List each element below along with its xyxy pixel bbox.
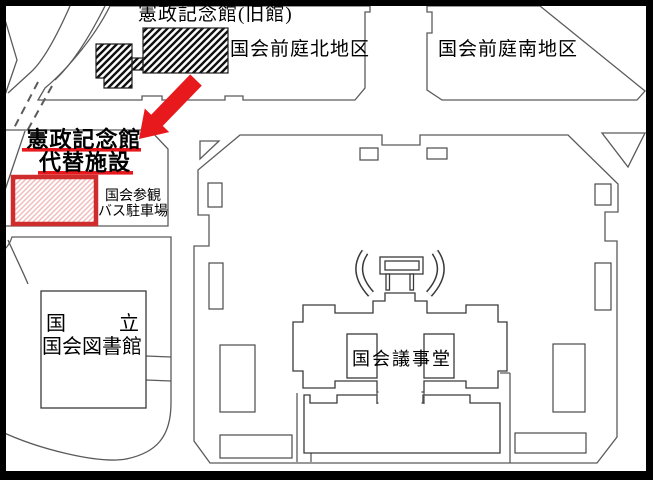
diet-block-annex-west: [220, 345, 255, 412]
old-hall-main-hatched: [143, 28, 228, 73]
label-library-ritsu: 立: [119, 312, 139, 335]
label-library-kuni: 国: [46, 313, 66, 335]
label-bus-parking-1: 国会参観: [105, 187, 161, 204]
label-north-garden: 国会前庭北地区: [230, 38, 370, 60]
frame-right: [646, 0, 653, 480]
diet-block-gate-west: [220, 435, 292, 458]
front-gate-post-left: [386, 274, 390, 290]
label-replacement-2: 代替施設: [38, 150, 131, 175]
bus-stop-rect-west: [360, 148, 378, 160]
label-diet-building: 国会議事堂: [352, 349, 452, 369]
diet-block-rect-w1: [209, 263, 223, 309]
replacement-site-rect: [13, 177, 96, 224]
diet-block-rect-e1: [595, 263, 611, 310]
diet-main-outline: [293, 293, 507, 392]
diet-block-rect-nw: [208, 183, 222, 207]
diet-center-connector-patch: [379, 390, 422, 405]
bus-stop-rect-east: [427, 148, 447, 159]
label-bus-parking-2: バス駐車場: [98, 203, 168, 220]
frame-left: [0, 0, 6, 480]
front-gate-post-right: [410, 274, 414, 290]
site-map-canvas: 憲政記念館(旧館) 国会前庭北地区 国会前庭南地区 憲政記念館 代替施設 国会参…: [0, 0, 653, 480]
label-library-2: 国会図書館: [42, 335, 142, 358]
frame-bottom: [0, 471, 653, 480]
diet-block-gate-east: [515, 433, 586, 453]
site-map-svg: 憲政記念館(旧館) 国会前庭北地区 国会前庭南地区 憲政記念館 代替施設 国会参…: [0, 0, 653, 480]
frame-top: [0, 0, 653, 6]
diet-block-annex-east: [553, 344, 585, 412]
front-gate-rect-inner: [385, 261, 419, 270]
old-hall-connector-hatched: [132, 58, 143, 70]
label-south-garden: 国会前庭南地区: [438, 38, 578, 60]
diet-block-rect-ne: [595, 184, 611, 205]
label-replacement-1: 憲政記念館: [26, 127, 141, 152]
